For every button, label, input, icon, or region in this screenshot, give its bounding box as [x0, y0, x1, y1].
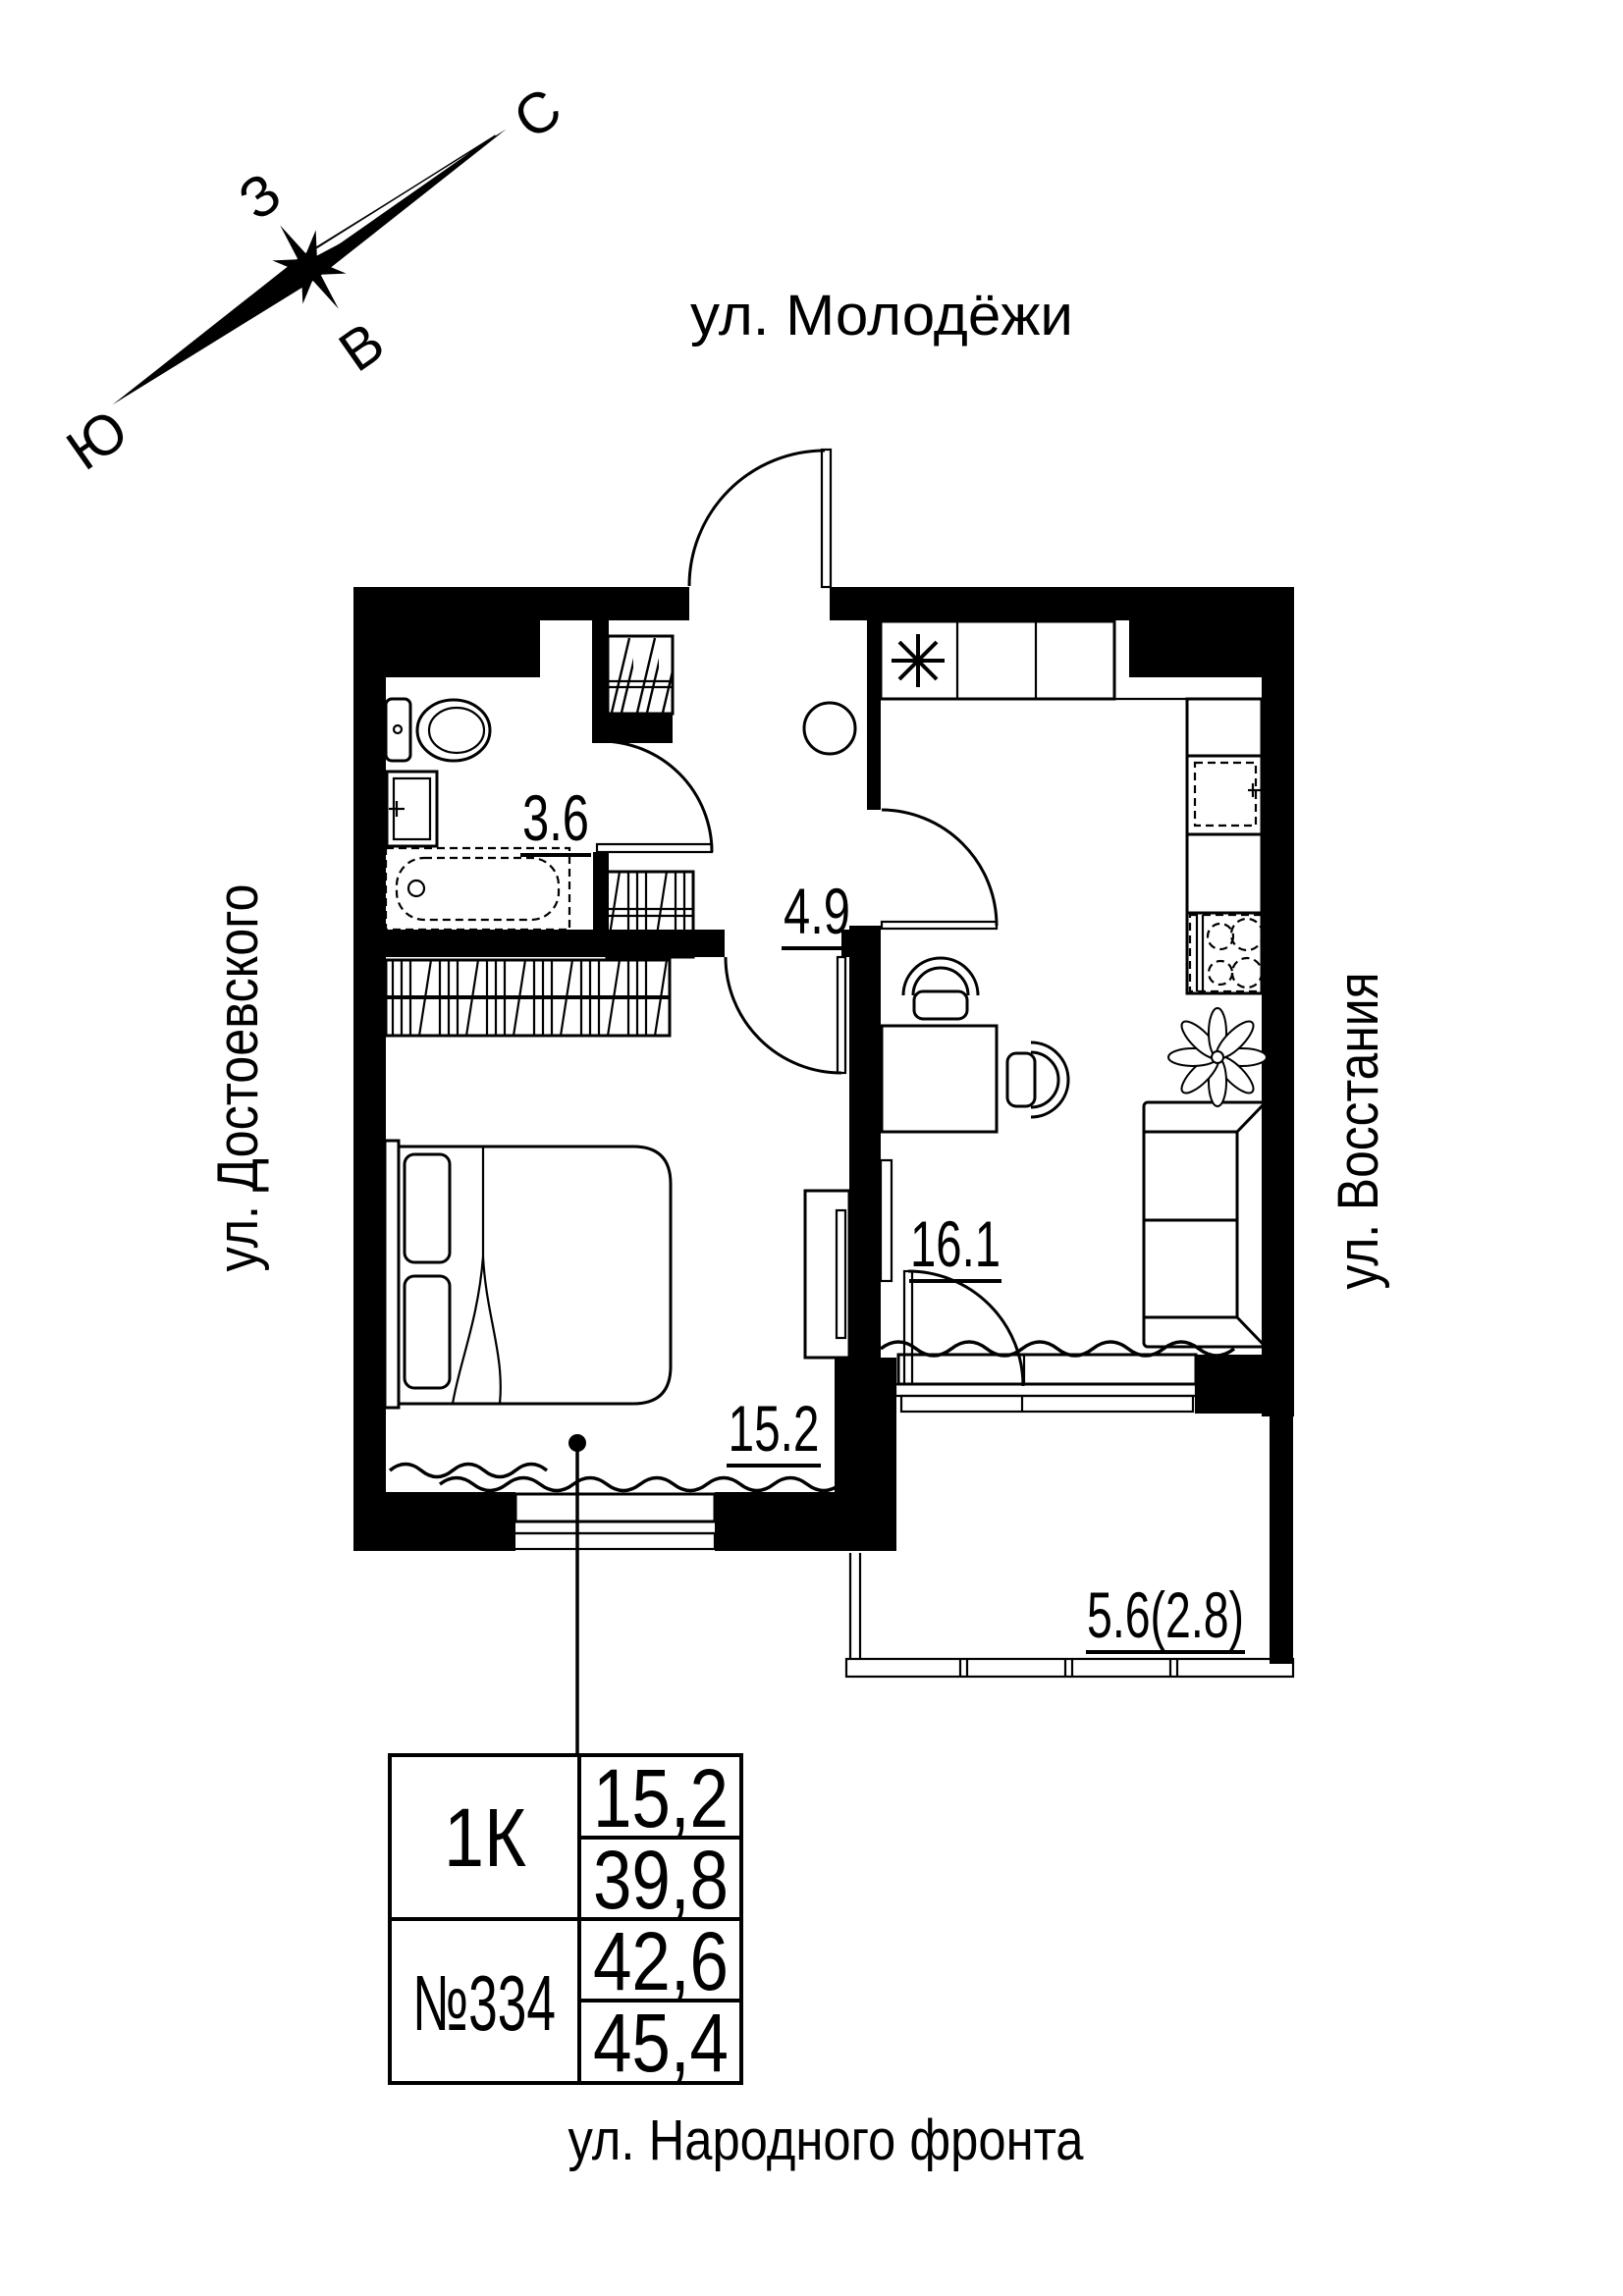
chair-icon [903, 958, 978, 1019]
balcony-door-leaf [904, 1271, 912, 1384]
walls [353, 587, 1294, 1664]
compass-north-label: С [503, 76, 573, 151]
curtain-bedroom-1 [390, 1465, 547, 1477]
hall-circle-symbol [804, 703, 855, 754]
pillow-icon [405, 1154, 450, 1262]
entrance-door [689, 450, 831, 587]
washbasin-icon [387, 772, 437, 846]
kitchen-door-arc [882, 810, 997, 926]
bed-headboard [385, 1141, 399, 1408]
entrance-door-leaf [822, 450, 831, 587]
apartment-info-table: 1К №334 15,2 39,8 42,6 45,4 [390, 1752, 741, 2089]
entrance-door-arc [689, 451, 825, 586]
floor-plan-sheet: С З В Ю ул. Молодёжи ул. Достоевского ул… [0, 0, 1623, 2296]
apartment-type: 1К [444, 1791, 526, 1884]
bathroom-door-leaf [597, 844, 712, 852]
duct-shaft-icon [608, 636, 673, 714]
wall-bedroom-bottom-right [715, 1492, 849, 1551]
compass-rose: С З В Ю [0, 1, 624, 545]
street-label-top: ул. Молодёжи [690, 284, 1073, 347]
bedroom-door [726, 957, 845, 1073]
bedroom-door-leaf [838, 957, 845, 1073]
wall-hall-kitchen [867, 620, 881, 810]
compass-east-label: В [328, 310, 396, 384]
living-area-value: 15,2 [593, 1752, 729, 1844]
plant-icon [1168, 1008, 1267, 1106]
sofa-icon [1144, 1102, 1265, 1347]
toilet-icon [386, 699, 490, 761]
apartment-number: №334 [412, 1959, 556, 2047]
dresser-icon [805, 1191, 849, 1358]
street-label-bottom: ул. Народного фронта [568, 2109, 1085, 2172]
curtain-bedroom-2 [440, 1478, 840, 1491]
kitchen-living-area-label: 16.1 [910, 1207, 1001, 1280]
bed-icon [385, 1141, 671, 1408]
wall-right [1262, 587, 1294, 1416]
stove-icon [1190, 915, 1263, 991]
closet-shaft-icon [607, 872, 693, 957]
fridge-asterisk-icon [892, 634, 945, 687]
bathtub-icon [386, 848, 569, 930]
compass-west-label: З [228, 161, 293, 233]
wall-left [353, 587, 386, 1551]
pillow-icon [405, 1276, 450, 1388]
bedroom-area-label: 15.2 [729, 1392, 820, 1465]
bathroom-door-arc [601, 741, 712, 852]
wall-pillar-bottom-right [1195, 1355, 1270, 1414]
wall-bathroom-jamb [593, 714, 673, 743]
wall-bedroom-living-divider [849, 926, 881, 1358]
wall-bedroom-bottom-left [353, 1492, 515, 1551]
kitchen-sink-icon [1195, 763, 1262, 826]
dining-table-icon [882, 1026, 997, 1132]
bedroom-window [503, 1494, 722, 1549]
kitchen-door [882, 810, 997, 929]
balcony-door-arc [908, 1271, 1023, 1386]
wall-right-balcony [1270, 1416, 1293, 1664]
compass-south-label: Ю [55, 398, 138, 483]
area-balcony-full-value: 45,4 [593, 1997, 729, 2089]
street-label-right: ул. Восстания [1326, 973, 1390, 1290]
balcony-area-label: 5.6(2.8) [1087, 1578, 1244, 1651]
bathroom-door [597, 741, 712, 852]
area-balcony-reduced-value: 42,6 [593, 1915, 729, 2007]
bedroom-door-arc [726, 957, 841, 1073]
kitchen-door-leaf [882, 922, 997, 929]
wall-top-right [830, 587, 1294, 620]
balcony-window-unit [895, 1355, 1196, 1412]
compass-needle-highlight [310, 127, 495, 260]
wall-top-left [353, 587, 689, 620]
bathroom-area-label: 3.6 [522, 781, 589, 854]
chair-icon [1007, 1042, 1068, 1117]
area-no-balcony-value: 39,8 [593, 1834, 729, 1926]
hallway-area-label: 4.9 [784, 875, 850, 947]
tv-icon [881, 1160, 892, 1281]
street-label-left: ул. Достоевского [206, 884, 270, 1272]
leader-line [568, 1434, 586, 1755]
balcony-door [904, 1271, 1023, 1386]
